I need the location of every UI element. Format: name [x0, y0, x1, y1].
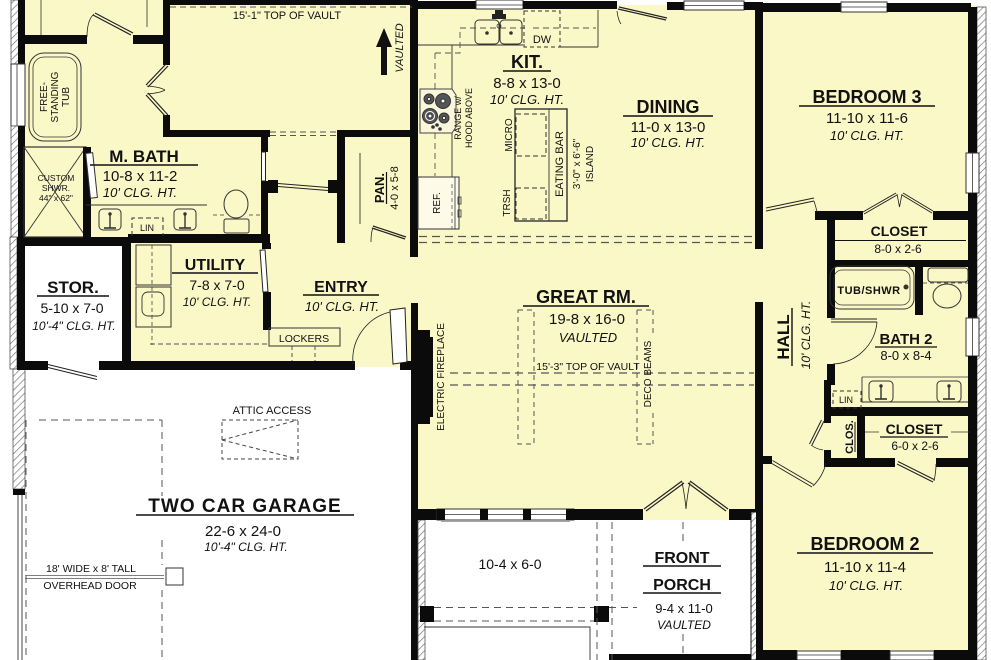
svg-text:8-8 x 13-0: 8-8 x 13-0	[493, 75, 561, 92]
svg-text:MICRO: MICRO	[504, 118, 515, 152]
svg-text:EATING BAR: EATING BAR	[554, 131, 566, 197]
svg-text:10' CLG. HT.: 10' CLG. HT.	[829, 578, 903, 593]
svg-text:M. BATH: M. BATH	[109, 147, 179, 166]
svg-text:ATTIC ACCESS: ATTIC ACCESS	[233, 405, 312, 417]
svg-text:6-0 x 2-6: 6-0 x 2-6	[891, 439, 939, 453]
svg-text:22-6 x 24-0: 22-6 x 24-0	[205, 523, 281, 540]
svg-text:10-4 x 6-0: 10-4 x 6-0	[478, 556, 541, 572]
svg-text:PORCH: PORCH	[653, 577, 711, 594]
svg-text:DINING: DINING	[637, 97, 700, 117]
svg-text:8-0 x 2-6: 8-0 x 2-6	[874, 242, 922, 256]
svg-text:TUB: TUB	[61, 87, 72, 107]
svg-text:LIN: LIN	[140, 223, 154, 233]
svg-text:19-8 x 16-0: 19-8 x 16-0	[549, 311, 625, 328]
svg-text:CLOS.: CLOS.	[844, 420, 856, 454]
svg-text:9-4 x 11-0: 9-4 x 11-0	[655, 601, 713, 616]
svg-text:11-10 x 11-6: 11-10 x 11-6	[826, 110, 908, 127]
svg-text:10' CLG. HT.: 10' CLG. HT.	[830, 128, 904, 143]
svg-text:VAULTED: VAULTED	[394, 23, 406, 72]
svg-text:ELECTRIC FIREPLACE: ELECTRIC FIREPLACE	[436, 323, 447, 431]
svg-text:11-10 x 11-4: 11-10 x 11-4	[824, 559, 906, 576]
svg-text:SHWR.: SHWR.	[42, 183, 70, 193]
svg-text:STOR.: STOR.	[47, 278, 99, 297]
svg-text:DW: DW	[533, 34, 552, 46]
svg-text:FRONT: FRONT	[654, 550, 709, 567]
svg-text:REF.: REF.	[432, 192, 443, 214]
svg-text:15'-3" TOP OF VAULT: 15'-3" TOP OF VAULT	[536, 361, 640, 373]
svg-text:STANDING: STANDING	[50, 71, 61, 122]
svg-text:HOOD ABOVE: HOOD ABOVE	[464, 88, 474, 148]
svg-text:CUSTOM: CUSTOM	[38, 173, 75, 183]
svg-text:10' CLG. HT.: 10' CLG. HT.	[631, 135, 705, 150]
svg-text:8-0 x 8-4: 8-0 x 8-4	[880, 348, 931, 363]
svg-text:VAULTED: VAULTED	[657, 618, 711, 632]
svg-text:18' WIDE x 8' TALL: 18' WIDE x 8' TALL	[46, 563, 136, 575]
svg-text:HALL: HALL	[774, 314, 793, 359]
svg-text:10'-4" CLG. HT.: 10'-4" CLG. HT.	[32, 319, 115, 333]
svg-text:OVERHEAD DOOR: OVERHEAD DOOR	[43, 580, 137, 592]
svg-text:TUB/SHWR: TUB/SHWR	[837, 285, 900, 297]
svg-text:KIT.: KIT.	[511, 52, 543, 72]
svg-text:10' CLG. HT.: 10' CLG. HT.	[183, 295, 252, 309]
svg-text:RANGE w/: RANGE w/	[453, 96, 463, 140]
svg-text:ENTRY: ENTRY	[314, 279, 368, 296]
svg-text:LOCKERS: LOCKERS	[279, 333, 329, 345]
svg-text:TWO CAR GARAGE: TWO CAR GARAGE	[148, 496, 341, 517]
svg-text:CLOSET: CLOSET	[886, 421, 943, 437]
svg-text:10' CLG. HT.: 10' CLG. HT.	[799, 301, 813, 370]
svg-text:LIN: LIN	[839, 395, 853, 405]
svg-text:11-0 x 13-0: 11-0 x 13-0	[631, 119, 706, 136]
svg-text:10' CLG. HT.: 10' CLG. HT.	[490, 92, 564, 107]
svg-text:PAN.: PAN.	[372, 173, 387, 203]
svg-text:VAULTED: VAULTED	[559, 330, 617, 345]
svg-text:TRSH: TRSH	[502, 189, 513, 216]
svg-text:10' CLG. HT.: 10' CLG. HT.	[103, 185, 177, 200]
svg-text:GREAT RM.: GREAT RM.	[536, 287, 636, 307]
svg-text:FREE-: FREE-	[39, 82, 50, 112]
svg-text:DECO BEAMS: DECO BEAMS	[643, 340, 654, 407]
svg-text:ISLAND: ISLAND	[585, 146, 596, 182]
svg-text:CLOSET: CLOSET	[871, 223, 928, 239]
svg-text:10'-4" CLG. HT.: 10'-4" CLG. HT.	[204, 540, 287, 554]
svg-text:3'-0" x 6'-6": 3'-0" x 6'-6"	[572, 138, 583, 189]
svg-text:UTILITY: UTILITY	[185, 257, 246, 274]
svg-text:5-10 x 7-0: 5-10 x 7-0	[40, 300, 103, 316]
svg-text:7-8 x 7-0: 7-8 x 7-0	[189, 277, 244, 293]
svg-text:4-0 x 5-8: 4-0 x 5-8	[389, 166, 401, 209]
svg-text:BEDROOM 3: BEDROOM 3	[812, 87, 921, 107]
svg-text:44" x 62": 44" x 62"	[39, 193, 73, 203]
svg-text:BATH 2: BATH 2	[879, 331, 932, 348]
svg-text:BEDROOM 2: BEDROOM 2	[810, 534, 919, 554]
svg-text:10-8 x 11-2: 10-8 x 11-2	[103, 168, 178, 185]
svg-text:10' CLG. HT.: 10' CLG. HT.	[305, 299, 379, 314]
svg-text:15'-1" TOP OF VAULT: 15'-1" TOP OF VAULT	[233, 10, 342, 22]
